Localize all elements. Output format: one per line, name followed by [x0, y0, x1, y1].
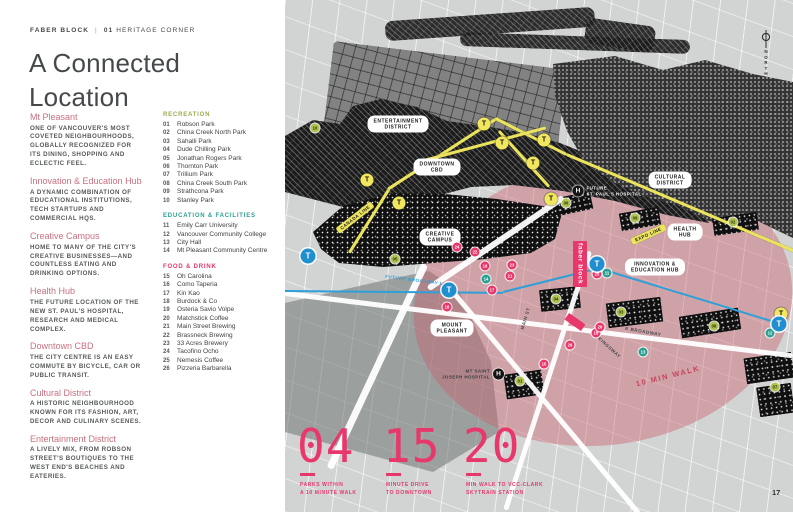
sidebar-section-heading: Entertainment District — [30, 434, 150, 444]
sidebar-section: Cultural DistrictA HISTORIC NEIGHBOURHOO… — [30, 388, 150, 427]
compass-letters: NORTH — [759, 49, 773, 77]
food-marker-17: 17 — [488, 286, 497, 295]
sidebar-section: Downtown CBDTHE CITY CENTRE IS AN EASY C… — [30, 341, 150, 380]
legend-row: 01Robson Park — [163, 122, 281, 129]
park-marker-06: 06 — [562, 199, 571, 208]
breadcrumb: FABER BLOCK|01 HERITAGE CORNER — [30, 27, 195, 34]
legend-item-name: Burdock & Co — [177, 299, 217, 306]
brochure-page: FABER BLOCK|01 HERITAGE CORNER A Connect… — [0, 0, 793, 512]
legend-item-name: Trillium Park — [177, 172, 213, 179]
education-marker-12: 12 — [766, 329, 775, 338]
legend-item-name: Oh Carolina — [177, 274, 212, 281]
legend-row: 18Burdock & Co — [163, 299, 281, 306]
north-compass: NORTH — [759, 30, 773, 77]
stat-block: 15MINUTE DRIVETO DOWNTOWN — [383, 426, 449, 497]
page-number: 17 — [772, 488, 780, 497]
hospital-icon: H — [493, 369, 504, 380]
district-label: HEALTHHUB — [668, 224, 703, 241]
district-label: INNOVATION &EDUCATION HUB — [625, 259, 685, 276]
food-marker-26: 26 — [566, 341, 575, 350]
legend-row: 19Osteria Savio Volpe — [163, 307, 281, 314]
legend-item-name: Main Street Brewing — [177, 324, 236, 331]
legend-item-number: 07 — [163, 172, 177, 179]
sidebar-section-body: THE FUTURE LOCATION OF THE NEW ST. PAUL'… — [30, 299, 144, 335]
sidebar-section: Entertainment DistrictA LIVELY MIX, FROM… — [30, 434, 150, 482]
future-st-pauls-hospital-marker: H FUTURE ST. PAUL'S HOSPITAL — [572, 186, 641, 197]
park-marker-01: 01 — [516, 377, 525, 386]
brand-name: FABER BLOCK — [30, 27, 89, 34]
legend-item-name: Matchstick Coffee — [177, 316, 229, 323]
legend-row: 24Tacofino Ocho — [163, 349, 281, 356]
legend-row: 10Stanley Park — [163, 198, 281, 205]
sidebar-section-body: A LIVELY MIX, FROM ROBSON STREET'S BOUTI… — [30, 446, 144, 482]
sidebar-section-heading: Downtown CBD — [30, 341, 150, 351]
stat-label: MIN WALK TO VCC-CLARKSKYTRAIN STATION — [466, 481, 578, 497]
stat-label: PARKS WITHINA 10 MINUTE WALK — [300, 481, 369, 497]
legend-item-name: Vancouver Community College — [177, 232, 266, 239]
food-marker-16: 16 — [481, 262, 490, 271]
map: CANADA LINE EXPO LINE FUTURE BROADWAY LI… — [285, 0, 793, 512]
sidebar-section: Health HubTHE FUTURE LOCATION OF THE NEW… — [30, 286, 150, 334]
legend-row: 08China Creek South Park — [163, 181, 281, 188]
sidebar-section: Creative CampusHOME TO MANY OF THE CITY'… — [30, 231, 150, 279]
legend-item-number: 04 — [163, 147, 177, 154]
skytrain-station-icon: T — [478, 118, 491, 131]
skytrain-station-icon: T — [496, 137, 509, 150]
sidebar-section-heading: Innovation & Education Hub — [30, 176, 150, 186]
legend-row: 25Nemesis Coffee — [163, 358, 281, 365]
legend-row: 17Kin Kao — [163, 291, 281, 298]
stat-underline — [466, 473, 481, 476]
skytrain-station-icon: T — [538, 134, 551, 147]
district-label: MOUNTPLEASANT — [431, 320, 474, 337]
sidebar-section-heading: Cultural District — [30, 388, 150, 398]
legend-item-name: Emily Carr University — [177, 223, 238, 230]
legend-row: 22Brassneck Brewing — [163, 333, 281, 340]
legend-row: 09Strathcona Park — [163, 189, 281, 196]
stat-value: 15 — [383, 426, 449, 466]
food-marker-20: 20 — [596, 323, 605, 332]
breadcrumb-divider: | — [95, 27, 98, 34]
skytrain-station-icon: T — [361, 174, 374, 187]
stat-underline — [386, 473, 401, 476]
legend-item-name: Robson Park — [177, 122, 215, 129]
education-marker-14: 14 — [482, 275, 491, 284]
legend-row: 02China Creek North Park — [163, 130, 281, 137]
legend-item-number: 22 — [163, 333, 177, 340]
sidebar-section: Innovation & Education HubA DYNAMIC COMB… — [30, 176, 150, 224]
future-station-icon: T — [772, 317, 787, 332]
stat-block: 20MIN WALK TO VCC-CLARKSKYTRAIN STATION — [463, 426, 578, 497]
legend-item-name: 33 Acres Brewery — [177, 341, 228, 348]
legend-item-name: Kin Kao — [177, 291, 200, 298]
legend: RECREATION01Robson Park02China Creek Nor… — [163, 112, 281, 382]
legend-row: 26Pizzeria Barbarella — [163, 366, 281, 373]
district-label: DOWNTOWNCBD — [413, 159, 460, 176]
food-marker-21: 21 — [506, 272, 515, 281]
sidebar-section-body: A DYNAMIC COMBINATION OF EDUCATIONAL INS… — [30, 189, 144, 225]
education-marker-13: 13 — [639, 348, 648, 357]
sidebar-section-body: ONE OF VANCOUVER'S MOST COVETED NEIGHBOU… — [30, 125, 144, 170]
food-marker-24: 24 — [453, 243, 462, 252]
legend-item-name: Thornton Park — [177, 164, 218, 171]
sidebar-section: Mt PleasantONE OF VANCOUVER'S MOST COVET… — [30, 112, 150, 169]
future-station-icon: T — [442, 283, 457, 298]
page-title: A Connected Location — [29, 46, 180, 115]
section-number: 01 — [104, 27, 113, 34]
legend-item-number: 19 — [163, 307, 177, 314]
future-st-pauls-hospital-label: FUTURE ST. PAUL'S HOSPITAL — [586, 186, 641, 197]
legend-item-number: 11 — [163, 223, 177, 230]
legend-row: 16Como Taperia — [163, 282, 281, 289]
legend-item-name: Sahalli Park — [177, 139, 212, 146]
stat-label: MINUTE DRIVETO DOWNTOWN — [386, 481, 449, 497]
legend-row: 11Emily Carr University — [163, 223, 281, 230]
legend-item-name: China Creek South Park — [177, 181, 247, 188]
legend-item-name: Dude Chilling Park — [177, 147, 231, 154]
legend-row: 2333 Acres Brewery — [163, 341, 281, 348]
mt-saint-joseph-hospital-label: MT SAINT JOSEPH HOSPITAL — [442, 369, 490, 380]
food-marker-22: 22 — [471, 248, 480, 257]
skytrain-station-icon: T — [527, 157, 540, 170]
legend-item-name: Osteria Savio Volpe — [177, 307, 234, 314]
legend-section-heading: RECREATION — [163, 112, 281, 118]
future-station-icon: T — [301, 249, 316, 264]
legend-row: 05Jonathan Rogers Park — [163, 156, 281, 163]
legend-item-number: 21 — [163, 324, 177, 331]
legend-item-number: 15 — [163, 274, 177, 281]
legend-item-number: 24 — [163, 349, 177, 356]
compass-icon — [760, 30, 772, 48]
legend-row: 13City Hall — [163, 240, 281, 247]
legend-item-number: 23 — [163, 341, 177, 348]
legend-item-number: 10 — [163, 198, 177, 205]
legend-item-number: 25 — [163, 358, 177, 365]
park-marker-02: 02 — [729, 218, 738, 227]
food-marker-23: 23 — [508, 261, 517, 270]
legend-item-name: Jonathan Rogers Park — [177, 156, 242, 163]
park-marker-07: 07 — [771, 383, 780, 392]
legend-row: 06Thornton Park — [163, 164, 281, 171]
food-marker-15: 15 — [540, 360, 549, 369]
legend-item-number: 12 — [163, 232, 177, 239]
legend-row: 21Main Street Brewing — [163, 324, 281, 331]
legend-item-number: 13 — [163, 240, 177, 247]
legend-row: 20Matchstick Coffee — [163, 316, 281, 323]
legend-item-name: Stanley Park — [177, 198, 214, 205]
legend-item-name: City Hall — [177, 240, 201, 247]
legend-section: EDUCATION & FACILITIES11Emily Carr Unive… — [163, 213, 281, 255]
skytrain-station-icon: T — [393, 197, 406, 210]
legend-item-number: 03 — [163, 139, 177, 146]
legend-item-name: Pizzeria Barbarella — [177, 366, 232, 373]
future-station-icon: T — [590, 257, 605, 272]
legend-section: RECREATION01Robson Park02China Creek Nor… — [163, 112, 281, 204]
legend-item-name: China Creek North Park — [177, 130, 246, 137]
sidebar-section-heading: Mt Pleasant — [30, 112, 150, 122]
hospital-icon: H — [572, 186, 583, 197]
legend-section-heading: EDUCATION & FACILITIES — [163, 213, 281, 219]
park-marker-05: 05 — [391, 255, 400, 264]
legend-item-name: Tacofino Ocho — [177, 349, 219, 356]
legend-item-name: Brassneck Brewing — [177, 333, 233, 340]
stat-block: 04PARKS WITHINA 10 MINUTE WALK — [297, 426, 369, 497]
mt-saint-joseph-hospital-marker: MT SAINT JOSEPH HOSPITAL H — [442, 369, 504, 380]
legend-item-name: Mt Pleasant Community Centre — [177, 248, 267, 255]
legend-item-number: 17 — [163, 291, 177, 298]
legend-item-number: 01 — [163, 122, 177, 129]
legend-row: 07Trillium Park — [163, 172, 281, 179]
legend-item-name: Strathcona Park — [177, 189, 224, 196]
legend-row: 12Vancouver Community College — [163, 232, 281, 239]
legend-item-number: 09 — [163, 189, 177, 196]
legend-item-number: 16 — [163, 282, 177, 289]
food-marker-18: 18 — [443, 303, 452, 312]
park-marker-03: 03 — [617, 308, 626, 317]
stat-underline — [300, 473, 315, 476]
sidebar-section-heading: Creative Campus — [30, 231, 150, 241]
sidebar-section-body: HOME TO MANY OF THE CITY'S CREATIVE BUSI… — [30, 244, 144, 280]
sidebar-section-body: THE CITY CENTRE IS AN EASY COMMUTE BY BI… — [30, 354, 144, 381]
legend-item-number: 26 — [163, 366, 177, 373]
sidebar-sections: Mt PleasantONE OF VANCOUVER'S MOST COVET… — [30, 112, 150, 489]
legend-row: 04Dude Chilling Park — [163, 147, 281, 154]
legend-row: 03Sahalli Park — [163, 139, 281, 146]
section-name: HERITAGE CORNER — [116, 27, 195, 34]
legend-item-number: 14 — [163, 248, 177, 255]
legend-item-name: Nemesis Coffee — [177, 358, 223, 365]
legend-item-number: 06 — [163, 164, 177, 171]
education-marker-11: 11 — [603, 269, 612, 278]
sidebar-section-heading: Health Hub — [30, 286, 150, 296]
legend-section: FOOD & DRINK15Oh Carolina16Como Taperia1… — [163, 264, 281, 373]
skytrain-station-icon: T — [545, 193, 558, 206]
legend-item-number: 18 — [163, 299, 177, 306]
legend-item-number: 08 — [163, 181, 177, 188]
faber-block-site-label: faber block — [573, 241, 587, 287]
legend-section-heading: FOOD & DRINK — [163, 264, 281, 270]
legend-item-number: 20 — [163, 316, 177, 323]
park-marker-08: 08 — [710, 322, 719, 331]
district-label: CULTURALDISTRICT — [649, 172, 692, 189]
stats-row: 04PARKS WITHINA 10 MINUTE WALK15MINUTE D… — [297, 426, 592, 497]
stat-value: 04 — [297, 426, 369, 466]
sidebar-section-body: A HISTORIC NEIGHBOURHOOD KNOWN FOR ITS F… — [30, 400, 144, 427]
legend-item-number: 02 — [163, 130, 177, 137]
park-marker-10: 10 — [311, 124, 320, 133]
park-marker-09: 09 — [631, 214, 640, 223]
legend-row: 14Mt Pleasant Community Centre — [163, 248, 281, 255]
left-panel: FABER BLOCK|01 HERITAGE CORNER A Connect… — [0, 0, 285, 512]
district-label: ENTERTAINMENTDISTRICT — [368, 116, 429, 133]
legend-item-name: Como Taperia — [177, 282, 217, 289]
stat-value: 20 — [463, 426, 578, 466]
legend-item-number: 05 — [163, 156, 177, 163]
legend-row: 15Oh Carolina — [163, 274, 281, 281]
park-marker-04: 04 — [552, 295, 561, 304]
